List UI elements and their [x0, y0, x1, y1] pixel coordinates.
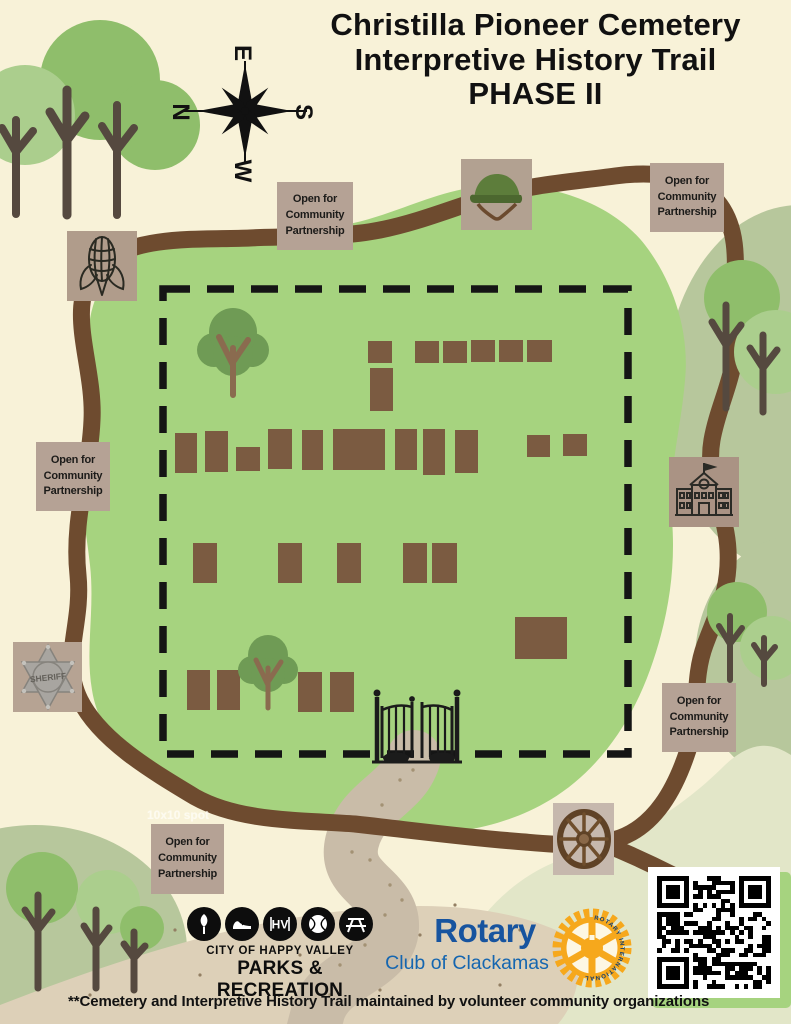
page-title: Christilla Pioneer Cemetery Interpretive…	[280, 8, 791, 112]
poplar-tree-icon	[187, 907, 221, 941]
partnership-label-top: Open for Community Partnership	[277, 182, 353, 250]
rotary-wordmark: Rotary	[410, 912, 560, 950]
helmet-marker	[461, 159, 532, 230]
picnic-table-icon	[339, 907, 373, 941]
partnership-label-bottom-left: Open for Community Partnership	[151, 824, 224, 894]
corn-icon	[73, 235, 131, 297]
compass-west-label: W	[229, 160, 256, 183]
rotary-club-name: Club of Clackamas	[382, 952, 552, 975]
title-line-2: Interpretive History Trail	[280, 43, 791, 78]
rotary-club-logo: Rotary Club of Clackamas ROTARY INTERNAT…	[382, 912, 652, 992]
army-helmet-icon	[464, 162, 530, 228]
partnership-label-left: Open for Community Partnership	[36, 442, 110, 511]
title-line-1: Christilla Pioneer Cemetery	[280, 8, 791, 43]
hv-monogram-icon: HV	[263, 907, 297, 941]
qr-code	[648, 867, 780, 998]
happy-valley-city-text: CITY OF HAPPY VALLEY	[180, 945, 380, 957]
partnership-label-right: Open for Community Partnership	[662, 683, 736, 752]
spot-size-note: 10x10 spot	[147, 808, 237, 822]
qr-code-modules	[657, 876, 771, 989]
rotary-wheel-icon: ROTARY INTERNATIONAL	[550, 906, 634, 995]
footer-note: **Cemetery and Interpretive History Trai…	[68, 993, 758, 1010]
trail-map-poster: E N S W	[0, 0, 791, 1024]
hv-monogram-text: HV	[272, 918, 289, 932]
compass-north-label: N	[167, 103, 194, 120]
school-marker	[669, 457, 739, 527]
happy-valley-icon-row: HV	[180, 907, 380, 941]
sheriff-marker: SHERIFF	[13, 642, 82, 712]
wagon-wheel-icon	[555, 808, 613, 870]
schoolhouse-icon	[673, 461, 735, 523]
title-line-3: PHASE II	[280, 77, 791, 112]
corn-marker	[67, 231, 137, 301]
happy-valley-parks-logo: HV CITY OF HAPPY VALLEY PARKS & RECREATI…	[180, 907, 380, 1002]
ball-icon	[301, 907, 335, 941]
compass-east-label: E	[229, 45, 256, 61]
partnership-label-top-right: Open for Community Partnership	[650, 163, 724, 232]
sheriff-badge-icon: SHERIFF	[15, 643, 81, 711]
wagon-wheel-marker	[553, 803, 614, 875]
sneaker-icon	[225, 907, 259, 941]
